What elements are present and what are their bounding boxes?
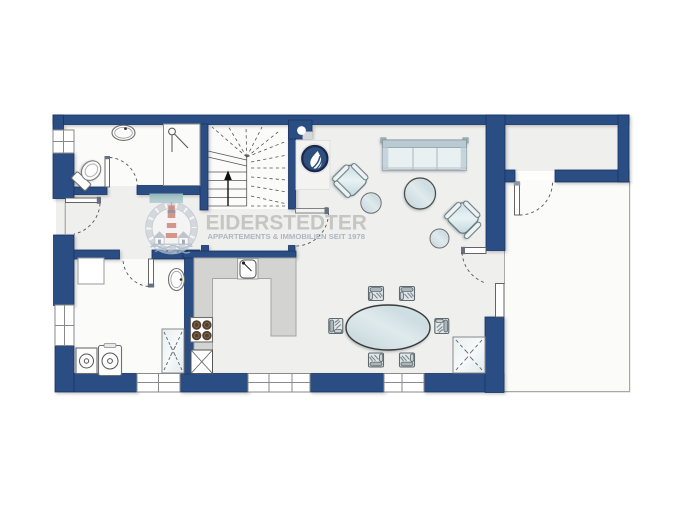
svg-text:APPARTEMENTS & IMMOBILIEN SEIT: APPARTEMENTS & IMMOBILIEN SEIT 1978: [208, 232, 366, 241]
